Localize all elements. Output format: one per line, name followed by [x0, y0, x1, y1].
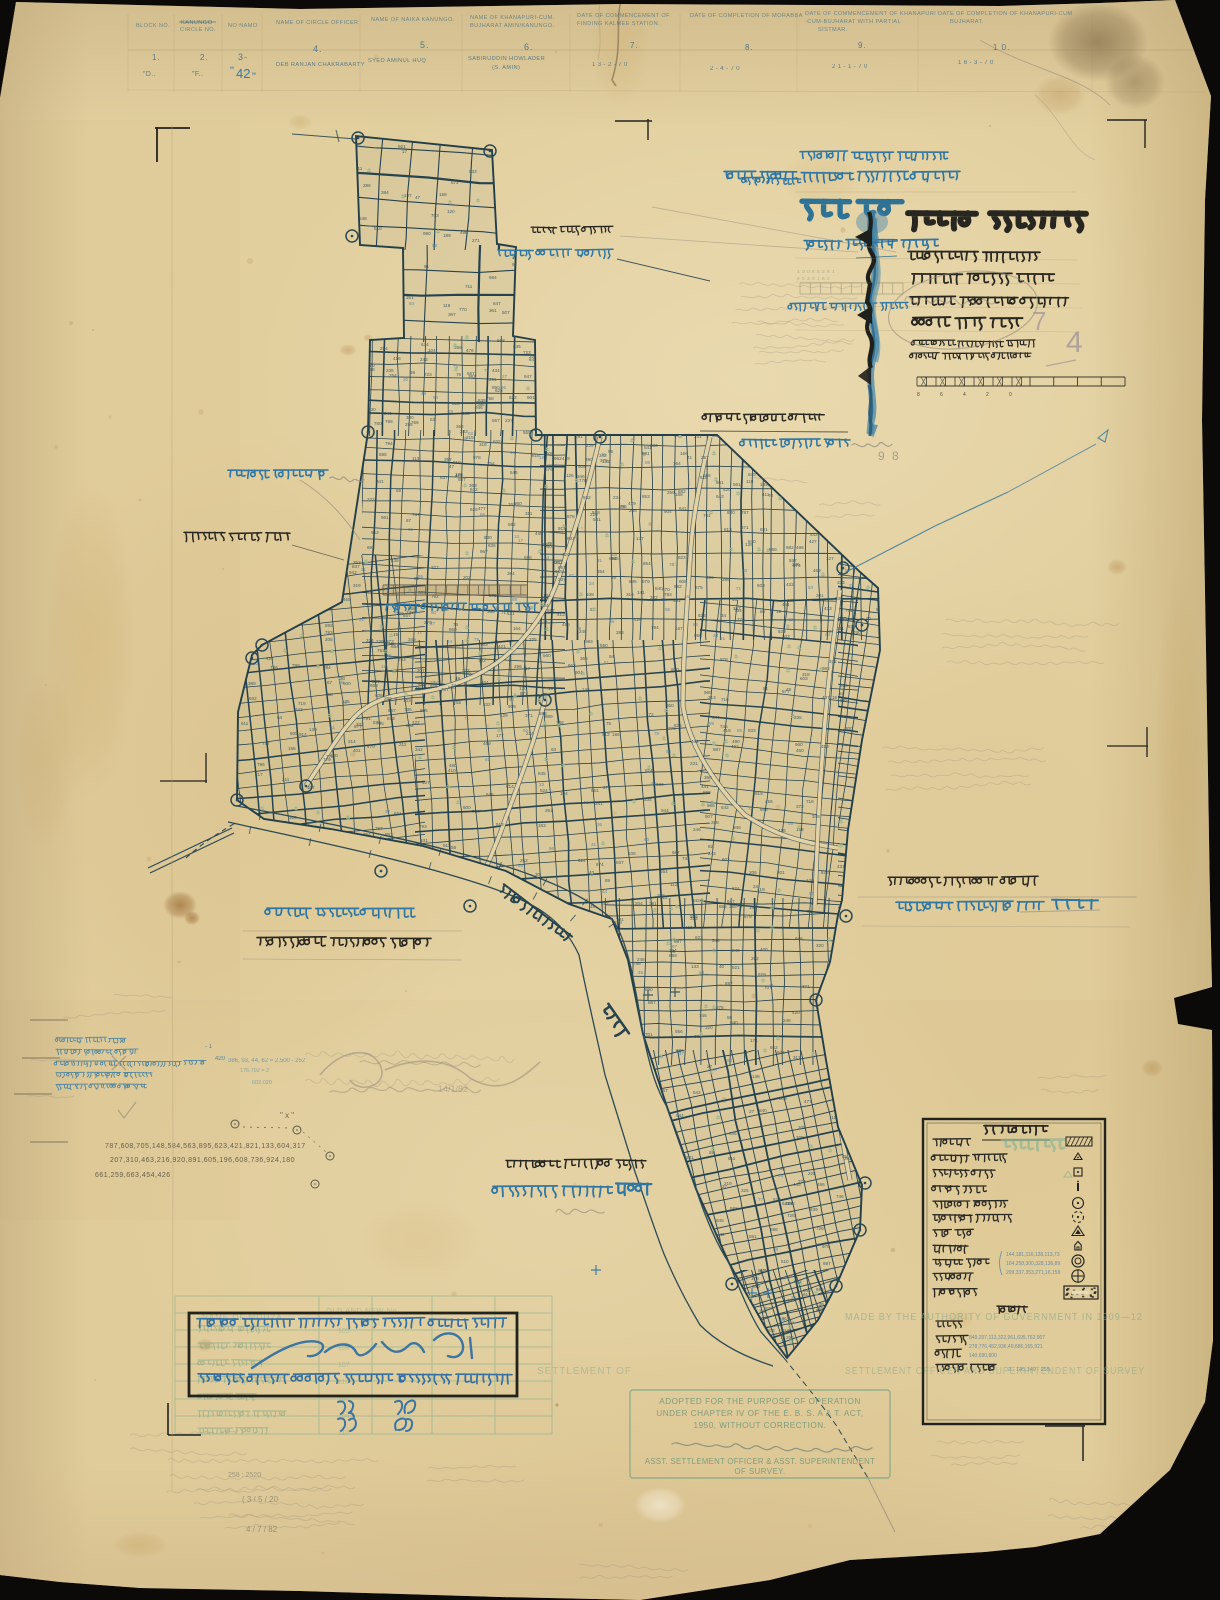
svg-text:783: 783 [325, 630, 333, 635]
svg-text:213: 213 [708, 695, 716, 700]
svg-text:798: 798 [633, 961, 641, 966]
svg-text:21: 21 [543, 618, 549, 623]
svg-text:DATE OF COMMENCEMENT OF: DATE OF COMMENCEMENT OF [577, 13, 670, 19]
svg-text:643: 643 [716, 494, 724, 499]
svg-text:51: 51 [763, 686, 769, 691]
svg-text:875: 875 [695, 585, 703, 590]
svg-text:788: 788 [385, 419, 393, 424]
svg-text:237: 237 [558, 577, 566, 582]
svg-text:1 6 - 3 - 7 0: 1 6 - 3 - 7 0 [958, 60, 994, 66]
svg-text:419: 419 [757, 887, 765, 892]
svg-text:131: 131 [507, 611, 515, 616]
svg-text:961: 961 [381, 515, 389, 520]
svg-text:354: 354 [597, 569, 605, 574]
svg-text:567: 567 [492, 418, 500, 423]
svg-text:364: 364 [507, 571, 515, 576]
svg-text:341: 341 [376, 479, 384, 484]
svg-text:442: 442 [717, 1232, 725, 1237]
svg-text:88: 88 [727, 1058, 733, 1063]
svg-text:635: 635 [486, 792, 494, 797]
svg-text:568: 568 [497, 338, 505, 343]
svg-text:19: 19 [776, 609, 782, 614]
svg-text:602.020: 602.020 [252, 1080, 272, 1086]
svg-text:224: 224 [526, 731, 534, 736]
svg-text:793: 793 [398, 657, 406, 662]
svg-text:272: 272 [646, 712, 654, 717]
svg-text:568: 568 [803, 1288, 811, 1293]
svg-text:50: 50 [666, 749, 672, 754]
svg-text:554: 554 [660, 869, 668, 874]
svg-text:71: 71 [736, 586, 742, 591]
svg-text:698: 698 [524, 555, 532, 560]
svg-text:999: 999 [508, 704, 516, 709]
svg-text:938: 938 [375, 693, 383, 698]
svg-text:368: 368 [704, 775, 712, 780]
svg-text:ASST. SETTLEMENT OFFICER & ASS: ASST. SETTLEMENT OFFICER & ASST. SUPERIN… [645, 1457, 875, 1466]
svg-text:840: 840 [730, 1020, 738, 1025]
svg-text:481: 481 [553, 560, 561, 565]
svg-text:381: 381 [816, 593, 824, 598]
svg-text:693: 693 [367, 545, 375, 550]
svg-text:942: 942 [349, 570, 357, 575]
svg-text:145: 145 [582, 687, 590, 692]
svg-text:441: 441 [782, 602, 790, 607]
svg-text:68: 68 [396, 488, 402, 493]
svg-text:946: 946 [733, 825, 741, 830]
svg-text:984: 984 [489, 275, 497, 280]
svg-text:642: 642 [721, 805, 729, 810]
svg-text:246: 246 [732, 948, 740, 953]
svg-text:45: 45 [638, 970, 644, 975]
svg-text:129: 129 [500, 713, 508, 718]
svg-text:560: 560 [543, 653, 551, 658]
svg-text:283: 283 [616, 630, 624, 635]
svg-text:39: 39 [778, 1173, 784, 1178]
svg-text:184: 184 [560, 791, 568, 796]
svg-text:125: 125 [566, 473, 574, 478]
svg-text:48: 48 [590, 904, 596, 909]
svg-text:381: 381 [649, 901, 657, 906]
svg-text:97: 97 [809, 891, 815, 896]
svg-text:58: 58 [727, 1015, 733, 1020]
svg-text:887: 887 [713, 747, 721, 752]
svg-text:67: 67 [327, 680, 333, 685]
svg-text:418: 418 [723, 728, 731, 733]
svg-text:431: 431 [837, 864, 845, 869]
svg-text:747: 747 [262, 741, 270, 746]
svg-text:257: 257 [701, 455, 709, 460]
svg-text:- 1: - 1 [205, 1044, 213, 1050]
svg-text:102: 102 [478, 658, 486, 663]
svg-text:246: 246 [693, 827, 701, 832]
svg-text:325: 325 [741, 1188, 749, 1193]
svg-text:71: 71 [464, 716, 470, 721]
svg-text:ADOPTED FOR THE PURPOSE OF OPE: ADOPTED FOR THE PURPOSE OF OPERATION [659, 1397, 860, 1406]
svg-text:BUJHARAT.: BUJHARAT. [950, 19, 984, 25]
svg-text:347: 347 [733, 606, 741, 611]
svg-text:95: 95 [408, 527, 414, 532]
svg-text:763: 763 [480, 642, 488, 647]
svg-text:531: 531 [420, 838, 428, 843]
svg-text:477: 477 [478, 506, 486, 511]
svg-text:351: 351 [406, 295, 414, 300]
svg-text:202: 202 [463, 575, 471, 580]
svg-text:307: 307 [417, 668, 425, 673]
svg-text:450: 450 [796, 748, 804, 753]
svg-text:205: 205 [629, 508, 637, 513]
svg-text:419: 419 [562, 456, 570, 461]
svg-text:745: 745 [699, 1013, 707, 1018]
svg-text:140,690,800: 140,690,800 [969, 1353, 997, 1359]
svg-text:235: 235 [794, 715, 802, 720]
svg-text:353: 353 [353, 560, 361, 565]
svg-text:661,259,663,454,426: 661,259,663,454,426 [95, 1172, 171, 1179]
svg-text:112: 112 [670, 882, 678, 887]
svg-text:95: 95 [501, 385, 507, 390]
svg-text:82: 82 [542, 695, 548, 700]
svg-text:254: 254 [389, 373, 397, 378]
svg-text:144,181,116,138,113,73: 144,181,116,138,113,73 [1006, 1252, 1060, 1258]
svg-text:878: 878 [716, 1005, 724, 1010]
svg-text:678: 678 [567, 514, 575, 519]
svg-text:56: 56 [788, 821, 794, 826]
svg-text:259: 259 [384, 696, 392, 701]
svg-text:758: 758 [486, 396, 494, 401]
svg-text:577: 577 [782, 689, 790, 694]
svg-text:60: 60 [644, 837, 650, 842]
svg-text:67: 67 [406, 518, 412, 523]
svg-text:623: 623 [695, 935, 703, 940]
svg-text:687: 687 [672, 850, 680, 855]
svg-text:752: 752 [377, 648, 385, 653]
svg-text:530: 530 [368, 407, 376, 412]
svg-text:279: 279 [737, 617, 745, 622]
svg-text:327: 327 [431, 565, 439, 570]
svg-text:26: 26 [780, 1166, 786, 1171]
svg-text:742: 742 [682, 856, 690, 861]
svg-text:764: 764 [673, 461, 681, 466]
svg-text:85: 85 [480, 512, 486, 517]
svg-text:153: 153 [538, 823, 546, 828]
svg-text:524: 524 [540, 788, 548, 793]
svg-text:933: 933 [748, 728, 756, 733]
svg-text:469: 469 [483, 741, 491, 746]
svg-text:960: 960 [795, 742, 803, 747]
svg-text:479: 479 [455, 473, 463, 478]
svg-text:384: 384 [381, 190, 389, 195]
svg-text:814: 814 [506, 784, 514, 789]
svg-text:833: 833 [567, 536, 575, 541]
svg-text:78: 78 [654, 731, 660, 736]
svg-text:912: 912 [558, 526, 566, 531]
svg-text:562: 562 [822, 666, 830, 671]
svg-text:223: 223 [367, 497, 375, 502]
svg-text:551: 551 [749, 1234, 757, 1239]
svg-text:960: 960 [514, 501, 522, 506]
svg-text:332: 332 [650, 595, 658, 600]
svg-text:978: 978 [720, 657, 728, 662]
svg-text:64: 64 [825, 632, 831, 637]
svg-text:111: 111 [837, 626, 844, 631]
svg-text:110: 110 [338, 1379, 349, 1386]
svg-text:6: 6 [940, 392, 943, 398]
svg-text:19: 19 [576, 626, 582, 631]
svg-text:342: 342 [692, 898, 700, 903]
svg-text:550: 550 [523, 430, 531, 435]
svg-text:268: 268 [711, 820, 719, 825]
svg-text:324: 324 [366, 638, 374, 643]
svg-text:837: 837 [765, 1306, 773, 1311]
svg-text:978: 978 [473, 455, 481, 460]
svg-text:21: 21 [361, 567, 367, 572]
svg-text:456: 456 [765, 799, 773, 804]
svg-text:840: 840 [759, 1108, 767, 1113]
svg-text:38: 38 [410, 370, 416, 375]
svg-text:" x ": " x " [280, 1111, 294, 1120]
svg-text:49: 49 [455, 676, 461, 681]
svg-text:134: 134 [543, 593, 551, 598]
svg-text:464: 464 [481, 680, 489, 685]
svg-text:27: 27 [749, 1109, 755, 1114]
svg-text:45: 45 [415, 686, 421, 691]
svg-text:947: 947 [524, 374, 532, 379]
svg-text:47: 47 [415, 195, 421, 200]
svg-text:597: 597 [547, 608, 555, 613]
svg-text:283: 283 [460, 429, 468, 434]
svg-text:736: 736 [270, 665, 278, 670]
svg-text:716: 716 [721, 697, 729, 702]
svg-text:737: 737 [412, 512, 420, 517]
svg-text:469: 469 [813, 568, 821, 573]
svg-text:10: 10 [253, 661, 259, 666]
svg-text:KANUNGO: KANUNGO [181, 20, 213, 26]
svg-text:651: 651 [394, 811, 402, 816]
svg-text:932: 932 [249, 696, 257, 701]
svg-text:4.: 4. [313, 44, 323, 54]
svg-text:167: 167 [675, 626, 683, 631]
svg-text:967: 967 [480, 549, 488, 554]
svg-text:138: 138 [752, 1074, 760, 1079]
svg-text:DATE OF COMPLETION OF KHANAPUR: DATE OF COMPLETION OF KHANAPURI-CUM [938, 11, 1072, 17]
svg-text:386: 386 [722, 577, 730, 582]
svg-text:118: 118 [746, 479, 754, 484]
svg-text:961: 961 [591, 788, 599, 793]
svg-text:666: 666 [795, 936, 803, 941]
svg-text:248: 248 [614, 920, 622, 925]
svg-text:433: 433 [824, 606, 832, 611]
svg-text:0: 0 [1009, 392, 1012, 398]
svg-text:787,608,705,148,584,563,895,62: 787,608,705,148,584,563,895,623,421,821,… [105, 1143, 306, 1150]
svg-text:141: 141 [637, 590, 645, 595]
svg-text:333: 333 [837, 580, 845, 585]
svg-text:86: 86 [760, 609, 766, 614]
svg-text:812: 812 [758, 1268, 766, 1273]
svg-text:520: 520 [723, 487, 731, 492]
svg-text:SYED AMINUL HUQ: SYED AMINUL HUQ [368, 58, 426, 64]
svg-text:584: 584 [737, 903, 745, 908]
svg-text:413: 413 [557, 612, 565, 617]
svg-text:1 3 - 2 - 7 0: 1 3 - 2 - 7 0 [592, 62, 628, 68]
svg-text:956: 956 [694, 633, 702, 638]
svg-text:248: 248 [783, 1018, 791, 1023]
svg-text:682: 682 [601, 901, 609, 906]
svg-text:189: 189 [443, 233, 451, 238]
svg-text:85: 85 [645, 460, 651, 465]
svg-text:77: 77 [417, 630, 423, 635]
svg-text:579: 579 [848, 624, 856, 629]
svg-text:509: 509 [578, 464, 586, 469]
svg-text:106: 106 [628, 851, 636, 856]
svg-text:7.: 7. [630, 41, 639, 50]
svg-text:192: 192 [787, 1201, 795, 1206]
svg-text:37: 37 [451, 683, 457, 688]
svg-text:11: 11 [574, 534, 579, 539]
svg-text:63: 63 [651, 781, 657, 786]
svg-text:983: 983 [585, 639, 593, 644]
svg-text:441: 441 [701, 784, 709, 789]
svg-text:97: 97 [849, 583, 855, 588]
svg-text:": " [252, 71, 256, 83]
svg-text:20: 20 [403, 377, 409, 382]
svg-text:743: 743 [295, 707, 303, 712]
svg-text:206: 206 [749, 870, 757, 875]
svg-text:16: 16 [832, 695, 838, 700]
svg-text:561: 561 [733, 482, 741, 487]
svg-text:876: 876 [821, 870, 829, 875]
svg-text:120: 120 [447, 209, 455, 214]
svg-text:824: 824 [732, 886, 740, 891]
svg-text:596: 596 [706, 575, 714, 580]
svg-text:503: 503 [767, 1328, 775, 1333]
svg-text:372: 372 [796, 804, 804, 809]
svg-text:919: 919 [755, 791, 763, 796]
svg-text:470: 470 [367, 744, 375, 749]
svg-text:962: 962 [554, 456, 562, 461]
svg-text:186: 186 [612, 732, 620, 737]
svg-text:349: 349 [408, 637, 416, 642]
svg-text:778: 778 [668, 726, 676, 731]
svg-text:579: 579 [744, 914, 752, 919]
svg-text:48: 48 [583, 800, 589, 805]
svg-text:1.: 1. [152, 53, 161, 62]
svg-text:303: 303 [782, 634, 790, 639]
svg-text:208: 208 [325, 637, 333, 642]
svg-text:225: 225 [808, 1171, 816, 1176]
svg-text:30: 30 [340, 676, 346, 681]
svg-text:396: 396 [477, 402, 485, 407]
svg-text:736: 736 [472, 809, 480, 814]
svg-text:840: 840 [655, 586, 663, 591]
svg-text:537: 537 [372, 679, 380, 684]
svg-text:726: 726 [816, 1226, 824, 1231]
svg-text:840: 840 [748, 539, 756, 544]
svg-text:800: 800 [671, 667, 679, 672]
svg-text:15: 15 [393, 632, 399, 637]
svg-text:674: 674 [418, 681, 426, 686]
svg-text:648: 648 [359, 216, 367, 221]
svg-text:108: 108 [586, 592, 594, 597]
svg-text:113: 113 [412, 456, 420, 461]
svg-text:645: 645 [729, 1131, 737, 1136]
svg-text:361: 361 [489, 308, 497, 313]
svg-text:48: 48 [448, 409, 454, 414]
svg-text:816: 816 [782, 1328, 790, 1333]
svg-text:300: 300 [289, 815, 297, 820]
svg-text:892: 892 [325, 623, 333, 628]
svg-text:30: 30 [535, 872, 541, 877]
svg-text:505: 505 [290, 731, 298, 736]
svg-text:486: 486 [817, 1182, 825, 1187]
svg-text:28: 28 [609, 619, 615, 624]
svg-text:929: 929 [758, 972, 766, 977]
svg-text:824: 824 [645, 768, 653, 773]
svg-text:37: 37 [385, 809, 391, 814]
svg-text:603: 603 [757, 583, 765, 588]
svg-text:NAME OF CIRCLE OFFICER: NAME OF CIRCLE OFFICER [276, 20, 358, 26]
svg-text:81: 81 [485, 757, 491, 762]
svg-text:462: 462 [691, 739, 699, 744]
svg-text:UNDER CHAPTER IV OF THE E. B.: UNDER CHAPTER IV OF THE E. B. S. A & T. … [656, 1409, 863, 1418]
svg-text:89: 89 [512, 597, 518, 602]
svg-text:830: 830 [484, 535, 492, 540]
svg-text:89: 89 [518, 863, 524, 868]
svg-text:55: 55 [665, 607, 671, 612]
svg-text:813: 813 [724, 527, 732, 532]
svg-text:598: 598 [379, 452, 387, 457]
svg-text:299,337,353,271,16,158: 299,337,353,271,16,158 [1006, 1270, 1060, 1276]
svg-text:368: 368 [487, 609, 495, 614]
svg-text:300: 300 [845, 726, 853, 731]
svg-text:421: 421 [266, 656, 274, 661]
svg-text:211: 211 [282, 777, 290, 782]
svg-text:DEB RANJAN CHAKRABARTY: DEB RANJAN CHAKRABARTY [276, 62, 365, 68]
svg-text:19: 19 [381, 664, 387, 669]
svg-text:87: 87 [569, 573, 575, 578]
svg-text:746: 746 [836, 1194, 844, 1199]
svg-text:291: 291 [489, 377, 497, 382]
svg-text:2: 2 [986, 392, 989, 398]
svg-text:95: 95 [418, 574, 424, 579]
svg-text:844: 844 [676, 1113, 684, 1118]
svg-text:632: 632 [493, 439, 501, 444]
svg-text:640: 640 [463, 671, 471, 676]
svg-text:47: 47 [449, 464, 455, 469]
svg-text:411: 411 [762, 492, 770, 497]
svg-text:127: 127 [422, 780, 430, 785]
svg-text:969: 969 [704, 690, 712, 695]
svg-text:716: 716 [806, 799, 814, 804]
svg-text:197: 197 [404, 193, 412, 198]
svg-text:453: 453 [821, 744, 829, 749]
svg-text:476: 476 [466, 348, 474, 353]
svg-text:95: 95 [608, 449, 614, 454]
svg-text:366: 366 [580, 656, 588, 661]
svg-text:845: 845 [538, 771, 546, 776]
svg-text:662: 662 [568, 663, 576, 668]
svg-text:296: 296 [514, 664, 522, 669]
svg-text:51: 51 [604, 660, 610, 665]
svg-text:705: 705 [839, 616, 847, 621]
svg-text:126: 126 [806, 878, 814, 883]
svg-text:499: 499 [562, 622, 570, 627]
svg-text:8.: 8. [745, 43, 754, 52]
svg-text:243: 243 [708, 851, 716, 856]
svg-text:667: 667 [558, 565, 566, 570]
svg-text:98: 98 [509, 697, 515, 702]
svg-text:371: 371 [525, 713, 533, 718]
svg-text:611: 611 [728, 1156, 736, 1161]
svg-text:9 8: 9 8 [878, 449, 901, 463]
